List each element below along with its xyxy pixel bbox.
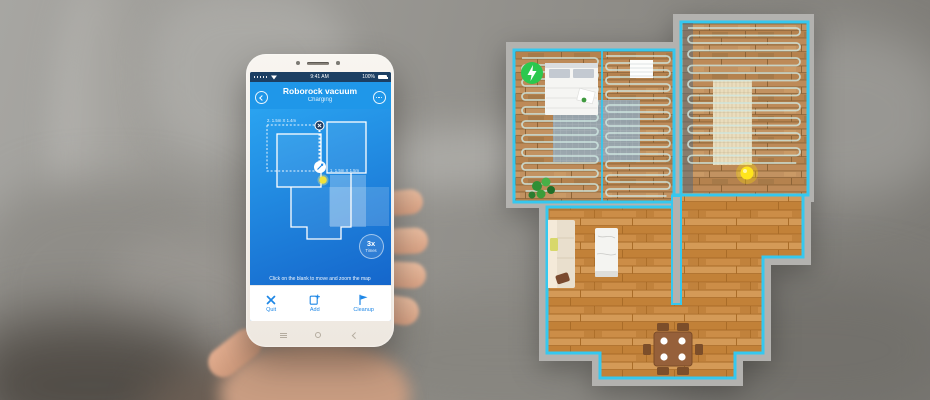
cleanup-label: Cleanup bbox=[353, 307, 374, 313]
zone-close-icon[interactable] bbox=[315, 121, 324, 130]
cleanup-flag-icon bbox=[358, 294, 369, 305]
counter-value: 3x bbox=[360, 239, 383, 248]
add-button[interactable]: Add bbox=[309, 294, 320, 313]
shelf bbox=[630, 60, 653, 78]
app-status: Charging bbox=[250, 97, 391, 103]
home-nav-icon[interactable] bbox=[315, 332, 321, 338]
counter-unit: Times bbox=[360, 248, 383, 253]
menu-nav-icon[interactable] bbox=[280, 333, 287, 338]
bed bbox=[545, 63, 598, 115]
wifi-icon bbox=[271, 75, 277, 80]
zone2-label: 2. 1.5m X 1.4m bbox=[267, 118, 297, 123]
android-nav-bar bbox=[246, 326, 394, 344]
plan-bedroom bbox=[514, 50, 674, 202]
plan-right-room bbox=[681, 22, 808, 195]
vacuum-map[interactable]: 2. 1.5m X 1.4m 1. 1.5m X 1.5m bbox=[250, 109, 391, 285]
signal-wifi-icons bbox=[254, 75, 277, 80]
battery-icon bbox=[378, 75, 387, 80]
zone-resize-handle[interactable] bbox=[314, 161, 326, 173]
floorplan-illustration bbox=[506, 10, 826, 388]
front-camera bbox=[296, 61, 300, 65]
sofa bbox=[548, 220, 575, 288]
coffee-table bbox=[595, 228, 618, 277]
toolbar: Quit Add Cleanup bbox=[250, 285, 391, 321]
vacuum-position-dot bbox=[736, 162, 758, 184]
dock-position-dot bbox=[317, 175, 328, 186]
map-room-left bbox=[277, 134, 321, 187]
map-room-right bbox=[327, 122, 366, 173]
cleanup-button[interactable]: Cleanup bbox=[353, 294, 374, 313]
back-nav-icon[interactable] bbox=[352, 332, 358, 338]
battery-percent: 100% bbox=[362, 74, 375, 80]
app-title: Roborock vacuum bbox=[250, 82, 391, 96]
scene: 9:41 AM 100% Roborock vacuum Charging bbox=[0, 0, 930, 400]
add-label: Add bbox=[310, 307, 320, 313]
add-zone-icon bbox=[309, 294, 320, 305]
quit-label: Quit bbox=[266, 307, 276, 313]
status-bar: 9:41 AM 100% bbox=[250, 72, 391, 82]
proximity-sensor bbox=[336, 61, 340, 65]
zone1-rect[interactable] bbox=[330, 175, 366, 227]
app-header: Roborock vacuum Charging bbox=[250, 82, 391, 109]
phone-screen: 9:41 AM 100% Roborock vacuum Charging bbox=[250, 72, 391, 321]
close-icon bbox=[266, 295, 276, 305]
zone1-label: 1. 1.5m X 1.5m bbox=[330, 168, 360, 173]
status-time: 9:41 AM bbox=[310, 74, 328, 80]
more-button[interactable] bbox=[373, 91, 386, 104]
ellipsis-icon bbox=[376, 97, 383, 98]
phone: 9:41 AM 100% Roborock vacuum Charging bbox=[246, 54, 394, 347]
clean-times-counter[interactable]: 3x Times bbox=[359, 234, 384, 259]
quit-button[interactable]: Quit bbox=[266, 295, 276, 313]
earpiece-speaker bbox=[307, 62, 329, 66]
charging-station-icon bbox=[521, 62, 543, 84]
map-hint: Click on the blank to move and zoom the … bbox=[250, 276, 391, 282]
